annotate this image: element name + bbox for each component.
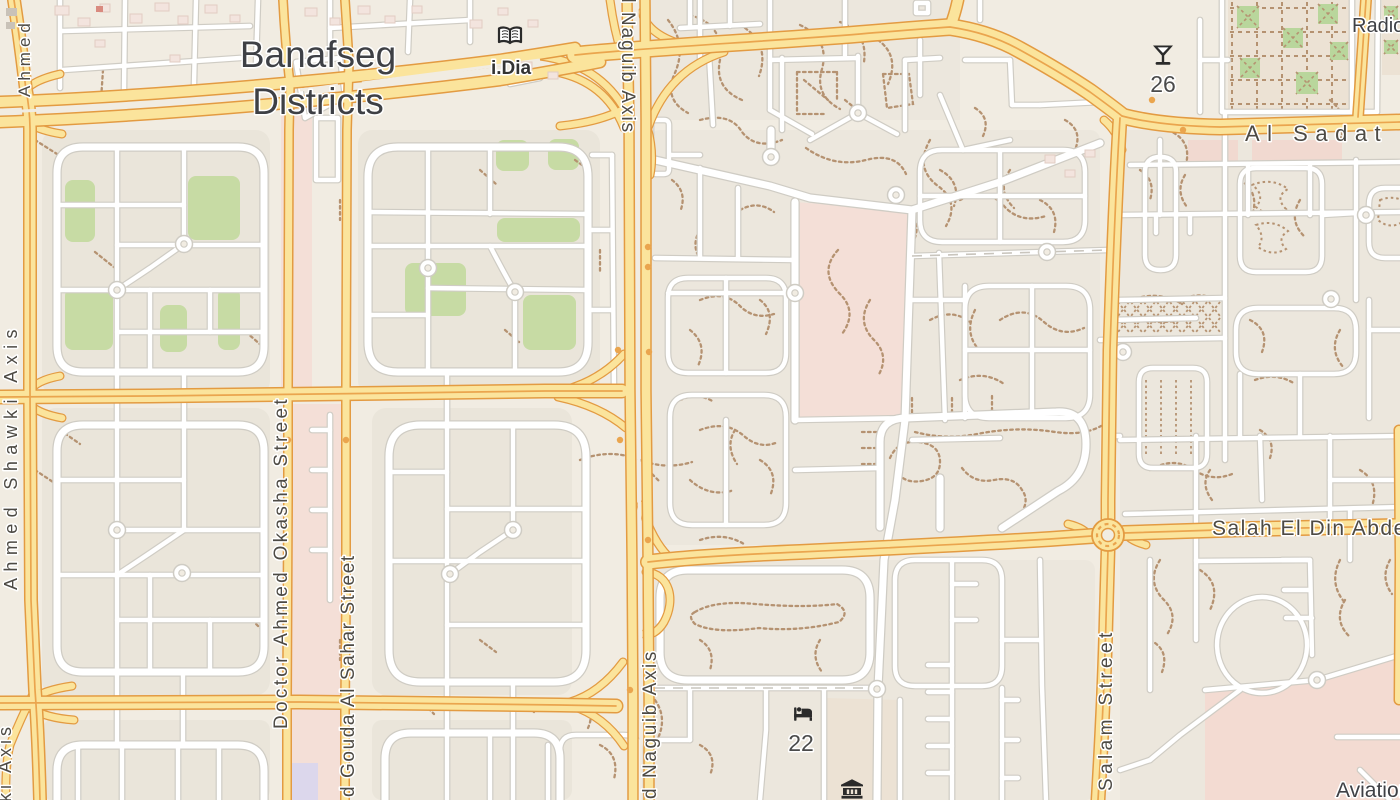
svg-text:d Naguib Axis: d Naguib Axis bbox=[617, 0, 638, 134]
svg-text:Aviation: Aviation bbox=[1336, 779, 1400, 800]
svg-text:i.Dia: i.Dia bbox=[491, 58, 532, 79]
svg-text:d Naguib Axis: d Naguib Axis bbox=[640, 649, 661, 799]
svg-text:26: 26 bbox=[1150, 71, 1176, 97]
svg-text:Ahmed Shawki Axis: Ahmed Shawki Axis bbox=[1, 323, 21, 590]
svg-text:Districts: Districts bbox=[252, 81, 384, 122]
svg-text:Salam Street: Salam Street bbox=[1096, 628, 1117, 791]
svg-text:22: 22 bbox=[788, 730, 814, 756]
svg-text:Doctor Ahmed Okasha Street: Doctor Ahmed Okasha Street bbox=[271, 396, 292, 729]
svg-text:Radio: Radio bbox=[1352, 15, 1400, 37]
svg-text:Ahmed: Ahmed bbox=[15, 18, 34, 97]
svg-text:ki Axis: ki Axis bbox=[0, 723, 15, 800]
svg-text:Salah El Din Abde: Salah El Din Abde bbox=[1212, 517, 1400, 540]
svg-text:Banafseg: Banafseg bbox=[240, 34, 396, 75]
svg-text:d Gouda Al Sahar Street: d Gouda Al Sahar Street bbox=[338, 554, 359, 797]
svg-text:Al Sadat: Al Sadat bbox=[1245, 121, 1388, 146]
